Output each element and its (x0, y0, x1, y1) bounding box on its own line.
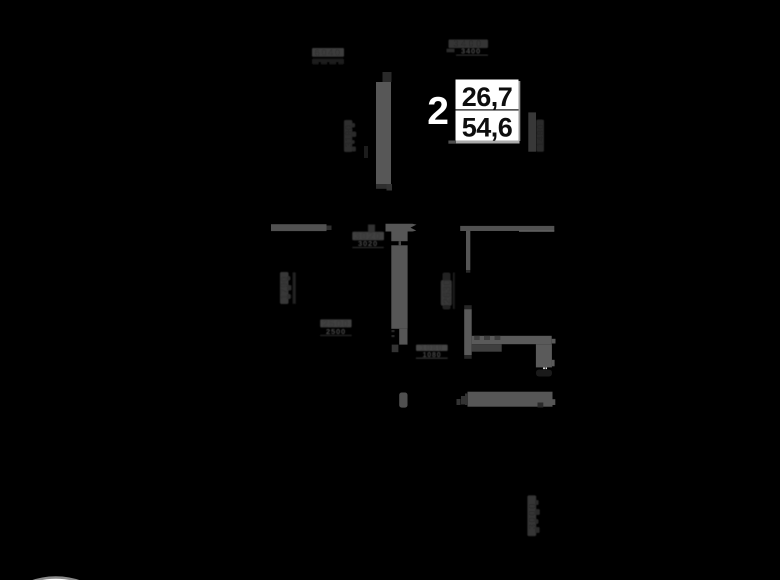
svg-text:2: 2 (427, 90, 449, 133)
svg-text:6040: 6040 (314, 48, 341, 59)
svg-text:54,6: 54,6 (462, 113, 513, 143)
svg-text:3000: 3000 (526, 502, 538, 529)
svg-text:1480: 1480 (536, 124, 547, 148)
svg-text:3190: 3190 (344, 124, 355, 147)
svg-text:3400: 3400 (461, 47, 481, 56)
svg-text:2630: 2630 (441, 280, 453, 304)
svg-text:1790: 1790 (280, 276, 291, 300)
svg-text:26,7: 26,7 (462, 82, 513, 112)
